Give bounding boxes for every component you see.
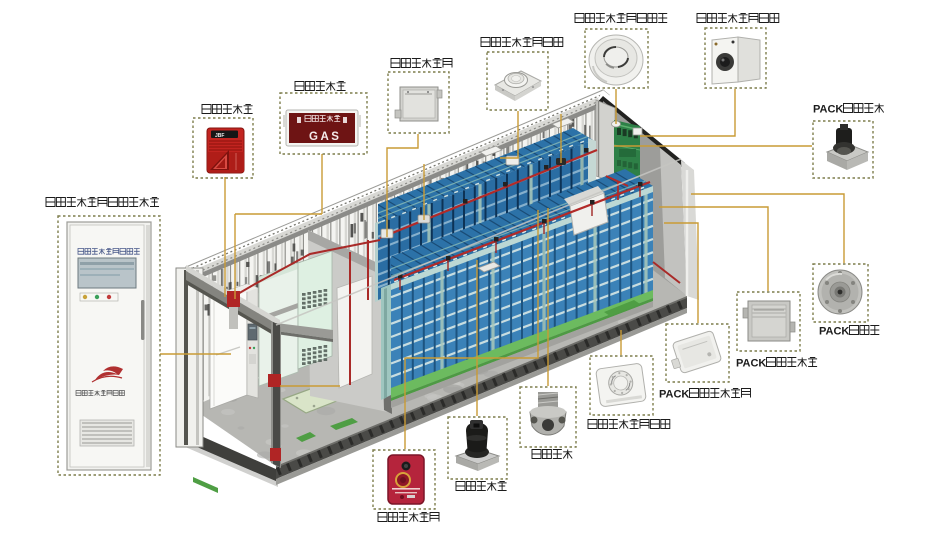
svg-text:JBF: JBF [215,133,224,139]
svg-text:PACK: PACK [819,326,849,338]
svg-text:GAS: GAS [309,131,341,143]
svg-text:PACK: PACK [659,389,689,401]
svg-text:PACK: PACK [813,104,843,116]
svg-text:PACK: PACK [736,358,766,370]
